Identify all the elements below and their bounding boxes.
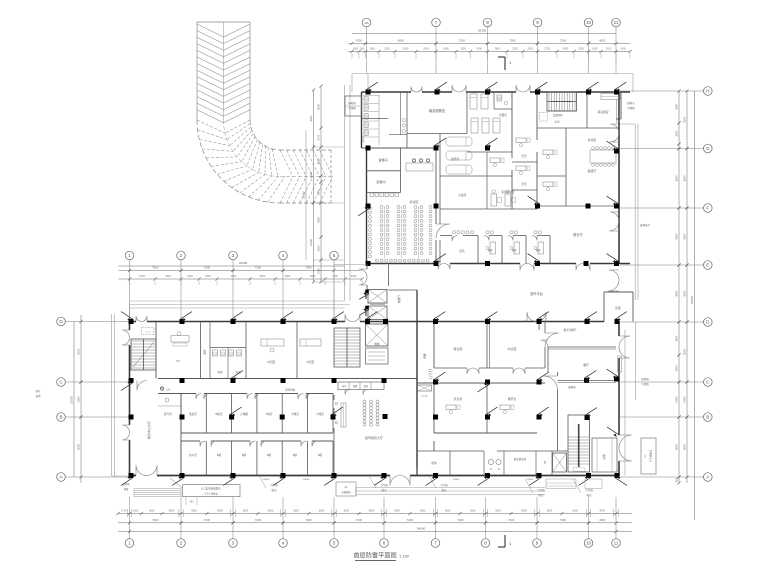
svg-text:6500: 6500 [420,510,426,513]
svg-text:定期消毒: 定期消毒 [285,388,296,392]
svg-text:2400: 2400 [476,48,482,51]
svg-text:做法: 做法 [538,493,544,497]
svg-text:首层防雷平面图: 首层防雷平面图 [353,552,396,560]
svg-text:9: 9 [536,540,539,545]
svg-text:输液厅: 输液厅 [587,168,596,173]
svg-text:2800: 2800 [494,48,500,51]
svg-text:B超室: B超室 [216,412,223,416]
svg-text:1/6: 1/6 [364,21,369,25]
svg-text:8500: 8500 [683,349,687,355]
svg-text:诊室: 诊室 [487,248,493,252]
svg-text:6500: 6500 [445,510,451,513]
svg-text:7200: 7200 [509,39,516,43]
svg-text:七电室: 七电室 [291,412,299,416]
svg-text:5000: 5000 [77,396,81,403]
svg-text:2700: 2700 [317,134,321,140]
svg-text:2900: 2900 [317,189,321,195]
svg-text:教学示教厅: 教学示教厅 [564,328,577,332]
svg-text:10: 10 [586,20,592,25]
svg-text:值班室: 值班室 [189,412,197,416]
svg-text:候诊区: 候诊区 [409,199,418,204]
svg-text:1700: 1700 [121,510,127,513]
svg-text:7200: 7200 [457,518,464,522]
svg-text:电梯: 电梯 [374,342,380,346]
svg-text:3100: 3100 [317,268,321,274]
svg-text:3600: 3600 [285,275,291,278]
svg-text:2800: 2800 [443,48,449,51]
svg-text:理疗室: 理疗室 [508,397,517,401]
svg-text:C6500: C6500 [303,479,310,481]
svg-text:6500: 6500 [169,510,175,513]
svg-text:B超: B超 [242,453,247,457]
svg-text:暗室: 暗室 [203,349,207,354]
svg-text:7200: 7200 [204,518,211,522]
svg-text:药房: 药房 [459,249,465,253]
svg-text:8500: 8500 [77,443,81,450]
svg-text:11200: 11200 [309,238,313,246]
svg-text:1000: 1000 [353,48,359,51]
svg-text:11: 11 [614,20,619,25]
svg-text:3: 3 [232,540,235,545]
svg-text:3300: 3300 [317,245,321,251]
svg-text:候诊厅: 候诊厅 [573,232,583,237]
svg-text:2400: 2400 [563,48,569,51]
svg-text:E: E [706,262,709,267]
svg-text:备餐间: 备餐间 [568,385,576,389]
svg-text:3300: 3300 [356,39,363,43]
svg-text:8200: 8200 [682,175,686,181]
svg-text:3600: 3600 [165,275,171,278]
svg-text:9: 9 [536,20,539,25]
svg-text:5000: 5000 [675,396,679,402]
svg-text:休息区: 休息区 [588,138,597,142]
svg-text:F: F [706,205,709,210]
svg-text:2400: 2400 [620,48,626,51]
svg-text:6500: 6500 [243,510,249,513]
svg-text:11: 11 [614,540,619,545]
svg-text:7200: 7200 [508,518,515,522]
svg-text:引下线: 引下线 [270,483,278,487]
svg-text:接地端: 接地端 [348,101,356,105]
svg-text:8500: 8500 [675,444,679,450]
svg-text:35300: 35300 [478,29,487,33]
svg-text:接地端: 接地端 [641,377,649,381]
svg-text:6500: 6500 [268,510,274,513]
svg-text:7: 7 [434,540,437,545]
svg-text:1900: 1900 [369,48,375,51]
svg-text:8500: 8500 [683,444,687,450]
svg-text:1: 1 [128,540,131,545]
svg-text:8000: 8000 [675,233,679,239]
svg-text:X光室: X光室 [267,359,275,364]
svg-text:7200: 7200 [356,518,363,522]
svg-text:B: B [59,414,62,419]
svg-text:7300: 7300 [152,518,159,522]
svg-text:心电图: 心电图 [240,412,248,416]
svg-text:7200: 7200 [255,266,262,270]
svg-text:挂号台: 挂号台 [164,412,172,416]
svg-text:6000: 6000 [317,104,321,110]
svg-text:54600: 54600 [690,296,694,304]
svg-text:O: O [490,467,492,471]
svg-text:C6500: C6500 [527,479,534,481]
svg-text:5000: 5000 [683,396,687,402]
svg-text:下预留: 下预留 [627,106,635,110]
svg-text:6500: 6500 [495,510,501,513]
svg-text:2100: 2100 [606,48,612,51]
svg-text:3000: 3000 [133,510,139,513]
svg-text:C6500: C6500 [263,479,270,481]
svg-text:挂号取药大厅: 挂号取药大厅 [365,435,383,440]
svg-text:6500: 6500 [217,510,223,513]
svg-text:XCDZB: XCDZB [421,396,428,398]
svg-text:3000: 3000 [675,130,679,136]
svg-text:更衣淋浴间: 更衣淋浴间 [514,457,527,461]
svg-text:特诊室: 特诊室 [453,346,462,351]
svg-text:子预留: 子预留 [641,382,649,386]
svg-text:5200: 5200 [351,275,357,278]
svg-text:C6500: C6500 [453,479,460,481]
svg-text:输液观察室: 输液观察室 [429,108,445,113]
svg-text:B超: B超 [318,453,323,457]
svg-text:设备用房: 设备用房 [553,113,564,117]
svg-text:引下线: 引下线 [380,483,388,487]
svg-text:6500: 6500 [293,510,299,513]
svg-text:6500: 6500 [344,510,350,513]
svg-text:B超: B超 [267,453,272,457]
svg-text:2050: 2050 [460,48,466,51]
svg-text:-0.8m 暗敷设: -0.8m 暗敷设 [204,492,219,496]
svg-text:接地引: 接地引 [627,101,635,105]
svg-text:6500: 6500 [470,510,476,513]
svg-text:走廊: 走廊 [423,353,427,359]
svg-text:X光室: X光室 [306,359,314,364]
svg-text:引下线: 引下线 [537,488,545,492]
svg-text:诊室: 诊室 [535,248,541,252]
svg-text:O: O [498,467,500,471]
svg-text:5700: 5700 [139,275,145,278]
svg-text:医师办公室: 医师办公室 [502,190,515,194]
svg-text:3: 3 [232,253,235,258]
svg-text:8: 8 [484,540,487,545]
svg-text:电梯厅: 电梯厅 [397,295,401,304]
svg-text:4000: 4000 [599,39,606,43]
svg-text:3600: 3600 [260,275,266,278]
svg-text:7200: 7200 [560,39,567,43]
svg-text:3800: 3800 [675,365,679,371]
svg-text:配餐间: 配餐间 [376,179,385,184]
svg-text:库房: 库房 [554,120,560,124]
svg-text:诊室: 诊室 [511,248,517,252]
svg-text:7: 7 [435,20,438,25]
svg-text:4: 4 [282,540,285,545]
svg-text:6500: 6500 [547,510,553,513]
svg-text:8200: 8200 [674,175,678,181]
svg-text:22000: 22000 [70,396,74,404]
svg-text:男厕: 男厕 [217,370,223,374]
svg-text:做法: 做法 [586,493,592,497]
svg-text:9600: 9600 [398,39,405,43]
svg-text:2300: 2300 [384,48,390,51]
svg-text:子预留: 子预留 [348,106,356,110]
svg-text:7200: 7200 [255,518,262,522]
svg-text:办公室: 办公室 [189,453,197,457]
svg-text:治疗室: 治疗室 [451,157,460,161]
svg-text:4500: 4500 [675,104,679,110]
svg-text:备餐间: 备餐间 [378,157,387,162]
svg-text:室外: 室外 [36,389,41,393]
svg-text:2: 2 [180,253,183,258]
svg-text:7300: 7300 [152,266,159,270]
svg-text:做法: 做法 [271,488,277,492]
svg-text:室外平台: 室外平台 [530,291,543,296]
svg-text:3000: 3000 [403,48,409,51]
svg-text:扶梯: 扶梯 [602,454,606,460]
svg-text:6500: 6500 [369,510,375,513]
svg-text:2050: 2050 [527,48,533,51]
svg-text:小卖部: 小卖部 [458,193,467,197]
svg-text:6500: 6500 [77,348,81,355]
svg-text:7200: 7200 [407,518,414,522]
svg-text:做法: 做法 [381,488,387,492]
svg-text:针灸室: 针灸室 [454,397,463,401]
svg-text:接地端子: 接地端子 [640,223,651,227]
svg-text:33400: 33400 [239,261,248,265]
svg-text:1: 1 [128,253,131,258]
svg-text:8200: 8200 [683,290,687,296]
svg-text:B超: B超 [293,453,298,457]
svg-text:900: 900 [360,48,365,51]
svg-text:引下线做法: 引下线做法 [649,449,653,462]
svg-text:3600: 3600 [231,275,237,278]
svg-text:8200: 8200 [683,116,687,122]
svg-text:7200: 7200 [459,39,466,43]
svg-text:7200: 7200 [204,266,211,270]
svg-text:6500: 6500 [521,510,527,513]
svg-text:中诊室: 中诊室 [507,346,516,351]
svg-text:G: G [706,146,710,151]
svg-text:5.2.1: 5.2.1 [145,331,151,333]
svg-text:H: H [706,88,709,93]
svg-text:2800: 2800 [310,275,316,278]
svg-text:6500: 6500 [572,510,578,513]
svg-text:诊室: 诊室 [521,182,527,186]
svg-text:母婴室: 母婴室 [499,113,507,117]
svg-text:1500: 1500 [332,275,338,278]
svg-text:1800: 1800 [592,48,598,51]
svg-text:8200: 8200 [683,233,687,239]
svg-text:6500: 6500 [191,510,197,513]
svg-text:七电室: 七电室 [316,412,324,416]
svg-text:B超: B超 [217,453,222,457]
svg-text:2900: 2900 [423,48,429,51]
svg-text:4000: 4000 [599,518,606,522]
svg-text:1:150: 1:150 [399,554,410,559]
svg-text:2250: 2250 [512,48,518,51]
svg-text:10: 10 [586,540,592,545]
svg-text:6500: 6500 [319,510,325,513]
svg-text:4200: 4200 [317,158,321,164]
svg-text:7200: 7200 [305,266,312,270]
svg-text:4900: 4900 [317,217,321,223]
svg-text:2050: 2050 [578,48,584,51]
svg-text:5: 5 [333,253,336,258]
svg-text:接地: 接地 [36,394,41,398]
svg-text:4: 4 [282,253,285,258]
svg-text:引下线: 引下线 [440,483,448,487]
svg-text:600: 600 [675,477,679,482]
svg-text:2: 2 [180,540,183,545]
svg-text:69600: 69600 [417,527,426,531]
svg-text:8000: 8000 [675,290,679,296]
svg-text:5: 5 [333,540,336,545]
svg-text:6: 6 [383,540,386,545]
svg-text:售饭: 售饭 [615,306,621,310]
svg-text:CT: CT [176,359,180,363]
svg-text:7300: 7300 [560,518,567,522]
svg-text:8200: 8200 [309,115,313,121]
svg-text:1/L 集中接地端子: 1/L 集中接地端子 [201,487,221,491]
svg-text:6500: 6500 [394,510,400,513]
svg-text:X电室: X电室 [266,412,273,416]
svg-text:8200: 8200 [309,172,313,178]
svg-text:候诊中心大厅: 候诊中心大厅 [146,421,151,439]
svg-text:引下线: 引下线 [585,488,593,492]
svg-text:4600: 4600 [205,275,211,278]
svg-text:4000: 4000 [599,510,605,513]
svg-text:2750: 2750 [544,48,550,51]
svg-text:7200: 7200 [305,518,312,522]
svg-text:B: B [706,414,709,419]
svg-text:25300: 25300 [302,191,306,199]
svg-text:8: 8 [486,20,489,25]
svg-text:4600: 4600 [675,335,679,341]
svg-text:3600: 3600 [149,510,155,513]
svg-text:餐厅: 餐厅 [583,363,589,367]
svg-text:做法: 做法 [441,488,447,492]
svg-text:配电: 配电 [431,461,437,465]
svg-text:2600: 2600 [187,275,193,278]
svg-text:诊室: 诊室 [521,154,527,158]
svg-text:消毒供应: 消毒供应 [597,110,608,114]
